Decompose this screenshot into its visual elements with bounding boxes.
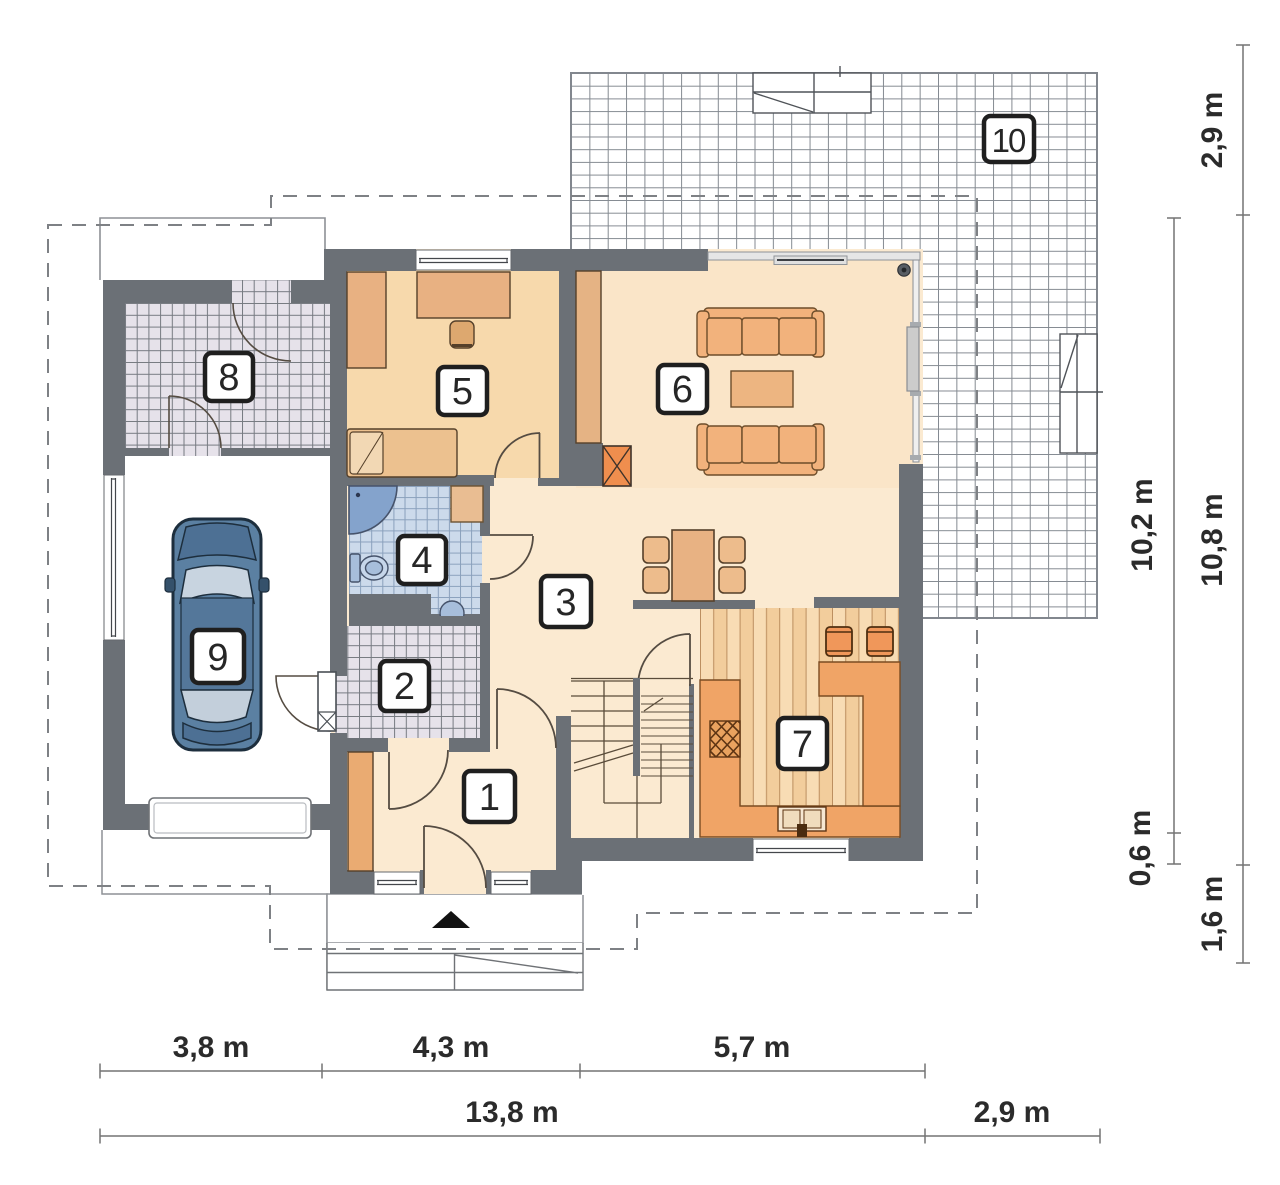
svg-text:1: 1	[479, 777, 500, 819]
svg-text:9: 9	[207, 637, 228, 679]
svg-text:0,6 m: 0,6 m	[1124, 810, 1157, 887]
svg-text:10: 10	[992, 122, 1026, 159]
svg-text:4,3 m: 4,3 m	[413, 1031, 490, 1064]
svg-text:1,6 m: 1,6 m	[1196, 876, 1229, 953]
svg-text:2: 2	[394, 666, 415, 708]
svg-text:3: 3	[555, 582, 576, 624]
svg-text:2,9 m: 2,9 m	[974, 1096, 1051, 1129]
svg-text:2,9 m: 2,9 m	[1196, 92, 1229, 169]
svg-text:10,2 m: 10,2 m	[1126, 478, 1159, 571]
svg-text:13,8 m: 13,8 m	[465, 1096, 558, 1129]
svg-text:6: 6	[672, 369, 693, 411]
svg-text:5: 5	[452, 371, 473, 413]
svg-text:4: 4	[411, 540, 432, 582]
svg-text:3,8 m: 3,8 m	[173, 1031, 250, 1064]
svg-text:5,7 m: 5,7 m	[714, 1031, 791, 1064]
svg-text:7: 7	[792, 724, 813, 766]
svg-text:8: 8	[218, 357, 239, 399]
svg-text:10,8 m: 10,8 m	[1196, 493, 1229, 586]
